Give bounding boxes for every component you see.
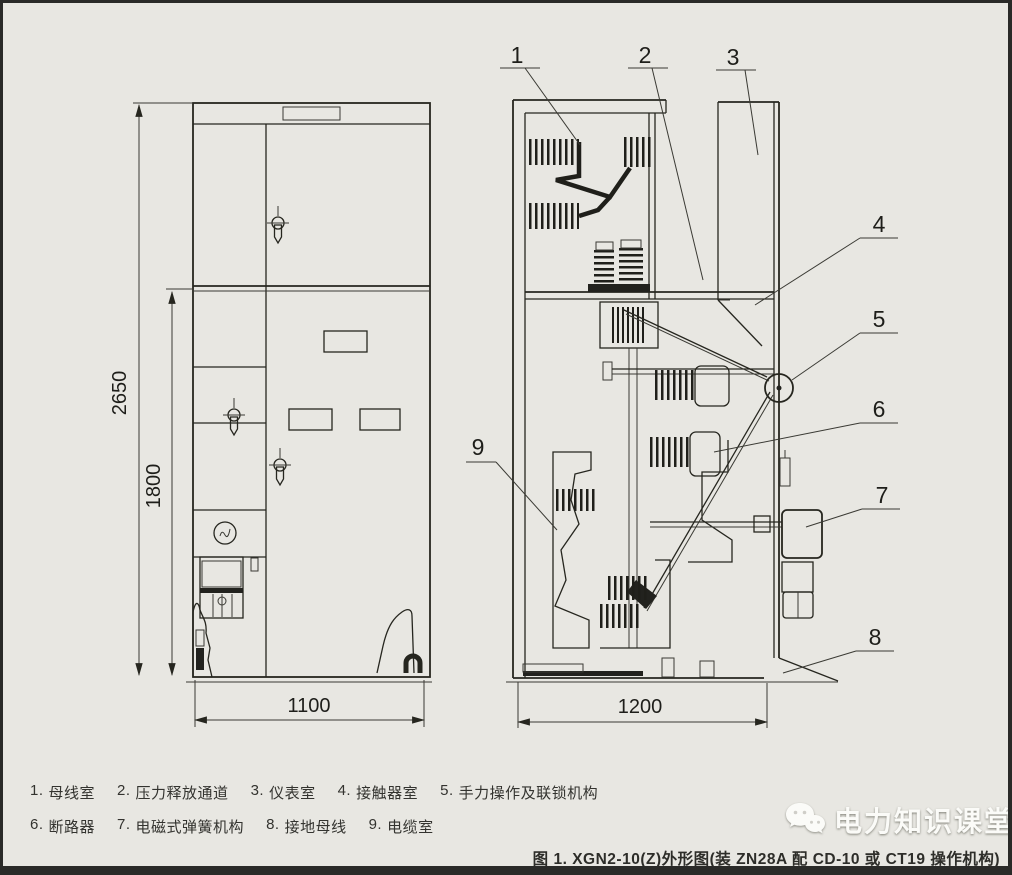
callout-4: 4 bbox=[755, 211, 898, 305]
callout-number: 5 bbox=[873, 306, 886, 332]
technical-drawing: 2650 1800 1100 1200 1 2 bbox=[0, 0, 1012, 875]
front-bottom-right-cover bbox=[377, 610, 420, 673]
legend-item-number: 3. bbox=[251, 782, 265, 803]
door-handle-lower bbox=[269, 448, 291, 485]
side-top-band bbox=[513, 100, 666, 113]
callout-5: 5 bbox=[792, 306, 898, 380]
callout-9: 9 bbox=[466, 434, 557, 530]
watermark-brand: 电力知识课堂 bbox=[834, 800, 1012, 840]
breaker-pole-lower bbox=[690, 432, 720, 476]
legend-item-label: 接触器室 bbox=[356, 782, 418, 803]
busbar-conductor bbox=[579, 197, 610, 216]
instrument-compartment bbox=[718, 102, 779, 346]
front-door-windows bbox=[289, 331, 400, 430]
legend-item-label: 手力操作及联锁机构 bbox=[459, 782, 599, 803]
legend-item-number: 9. bbox=[369, 816, 383, 837]
callout-number: 9 bbox=[472, 434, 485, 460]
spring-mechanism-box bbox=[782, 510, 822, 618]
legend-row-1: 1.母线室2.压力释放通道3.仪表室4.接触器室5.手力操作及联锁机构 bbox=[30, 782, 598, 803]
breaker-pole-upper bbox=[695, 366, 729, 406]
side-view bbox=[506, 100, 838, 682]
legend-item: 1.母线室 bbox=[30, 782, 95, 803]
door-handle-left bbox=[223, 398, 245, 435]
lower-contact-assembly bbox=[600, 560, 670, 648]
interlock-linkage-rods bbox=[624, 310, 773, 611]
base-skirt bbox=[779, 658, 838, 681]
callout-7: 7 bbox=[806, 482, 900, 527]
breaker-frame bbox=[688, 440, 732, 562]
door-window bbox=[360, 409, 400, 430]
legend-item-number: 7. bbox=[117, 816, 131, 837]
legend-item-number: 1. bbox=[30, 782, 44, 803]
dim-label-1800: 1800 bbox=[143, 464, 165, 509]
legend-item: 7.电磁式弹簧机构 bbox=[117, 816, 244, 837]
callout-number: 7 bbox=[876, 482, 889, 508]
legend-item-label: 电磁式弹簧机构 bbox=[136, 816, 245, 837]
callout-number: 6 bbox=[873, 396, 886, 422]
legend-item-number: 4. bbox=[338, 782, 352, 803]
watermark: 电力知识课堂 bbox=[784, 800, 1012, 840]
legend-item-number: 2. bbox=[117, 782, 131, 803]
callout-2: 2 bbox=[628, 42, 703, 280]
legend-item-label: 电缆室 bbox=[387, 816, 434, 837]
legend-item-number: 8. bbox=[266, 816, 280, 837]
cable-compartment bbox=[553, 452, 596, 648]
front-view bbox=[186, 103, 432, 682]
legend-item-label: 接地母线 bbox=[285, 816, 347, 837]
legend-item: 6.断路器 bbox=[30, 816, 95, 837]
figure-page: 2650 1800 1100 1200 1 2 bbox=[0, 0, 1012, 875]
callout-1: 1 bbox=[500, 42, 580, 145]
legend-item: 5.手力操作及联锁机构 bbox=[440, 782, 598, 803]
wall-bracket bbox=[780, 450, 790, 486]
dimension-front-width: 1100 bbox=[195, 680, 424, 727]
door-handle-upper bbox=[267, 206, 289, 243]
dim-label-2650: 2650 bbox=[109, 371, 131, 416]
dim-label-1100: 1100 bbox=[287, 695, 330, 717]
callout-number: 2 bbox=[639, 42, 652, 68]
release-chute bbox=[718, 300, 762, 346]
breaker-and-linkage bbox=[600, 302, 793, 648]
legend-item: 8.接地母线 bbox=[266, 816, 347, 837]
front-nameplate bbox=[283, 107, 340, 120]
callout-number: 8 bbox=[869, 624, 882, 650]
legend-item: 2.压力释放通道 bbox=[117, 782, 229, 803]
callout-3: 3 bbox=[716, 44, 758, 155]
dimension-body-height: 1800 bbox=[143, 289, 193, 675]
callout-number: 3 bbox=[727, 44, 740, 70]
side-right-wall bbox=[774, 102, 779, 658]
dimension-side-depth: 1200 bbox=[518, 682, 767, 728]
callout-number: 4 bbox=[873, 211, 886, 237]
legend-item-number: 5. bbox=[440, 782, 454, 803]
legend-item: 4.接触器室 bbox=[338, 782, 419, 803]
door-window bbox=[289, 409, 332, 430]
parts-legend: 1.母线室2.压力释放通道3.仪表室4.接触器室5.手力操作及联锁机构 6.断路… bbox=[30, 782, 598, 850]
callout-6: 6 bbox=[714, 396, 898, 452]
figure-caption: 图 1. XGN2-10(Z)外形图(装 ZN28A 配 CD-10 或 CT1… bbox=[533, 847, 1000, 869]
brand-logo-mark bbox=[214, 522, 236, 544]
front-left-column-panels bbox=[193, 367, 266, 557]
legend-item-label: 仪表室 bbox=[269, 782, 316, 803]
legend-item: 3.仪表室 bbox=[251, 782, 316, 803]
busbar-compartment-internals bbox=[529, 142, 654, 292]
legend-item-label: 压力释放通道 bbox=[136, 782, 229, 803]
front-bottom-left-cover bbox=[193, 603, 212, 677]
front-lower-mechanism-panel bbox=[200, 557, 258, 618]
legend-item-number: 6. bbox=[30, 816, 44, 837]
legend-item-label: 母线室 bbox=[49, 782, 96, 803]
front-horizontal-divider bbox=[193, 286, 430, 291]
callout-number: 1 bbox=[511, 42, 524, 68]
wechat-icon bbox=[784, 801, 826, 839]
side-base bbox=[506, 658, 838, 682]
door-window bbox=[324, 331, 367, 352]
legend-row-2: 6.断路器7.电磁式弹簧机构8.接地母线9.电缆室 bbox=[30, 816, 598, 837]
legend-item: 9.电缆室 bbox=[369, 816, 434, 837]
legend-item-label: 断路器 bbox=[49, 816, 96, 837]
side-left-wall bbox=[513, 100, 525, 678]
dimension-total-height: 2650 bbox=[109, 103, 193, 675]
dim-label-1200: 1200 bbox=[618, 696, 663, 718]
